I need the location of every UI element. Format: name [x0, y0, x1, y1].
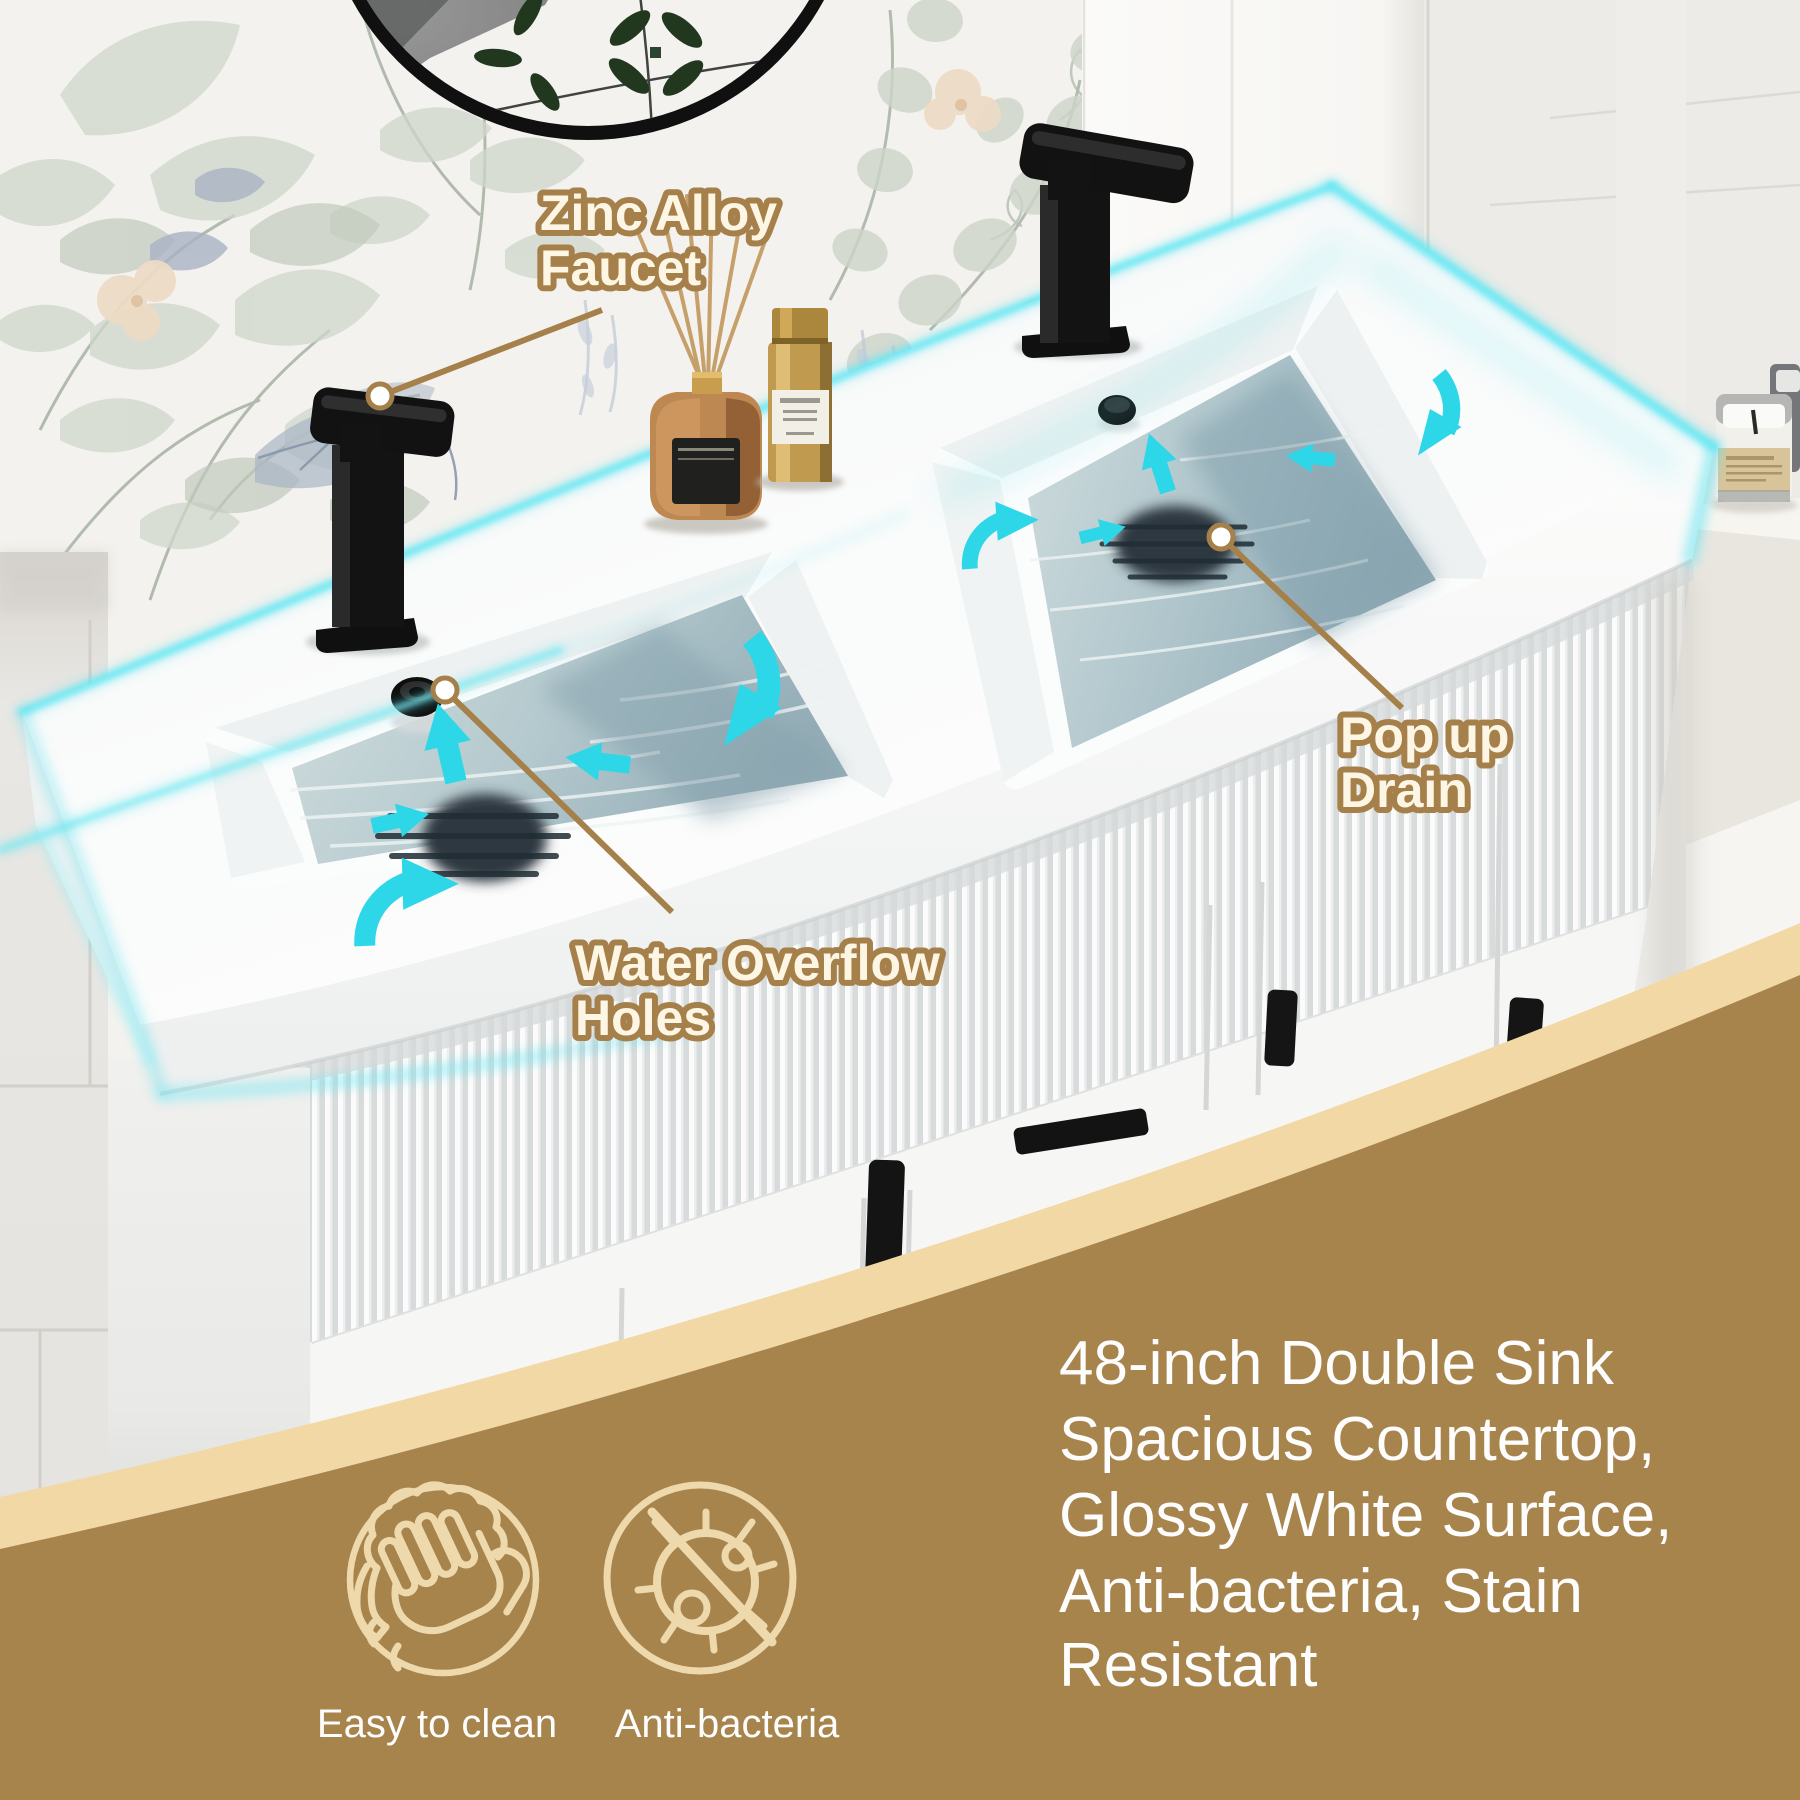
- svg-text:Easy to clean: Easy to clean: [317, 1702, 557, 1746]
- svg-text:Water Overflow: Water Overflow: [575, 935, 940, 991]
- svg-text:Glossy White Surface,: Glossy White Surface,: [1059, 1481, 1672, 1550]
- svg-text:Anti-bacteria: Anti-bacteria: [615, 1702, 840, 1746]
- svg-text:Drain: Drain: [1340, 762, 1468, 818]
- svg-text:Pop up: Pop up: [1340, 707, 1509, 763]
- svg-text:Faucet: Faucet: [540, 240, 702, 296]
- svg-text:Spacious Countertop,: Spacious Countertop,: [1059, 1405, 1655, 1474]
- svg-text:48-inch Double Sink: 48-inch Double Sink: [1059, 1329, 1615, 1398]
- svg-text:Zinc Alloy: Zinc Alloy: [540, 185, 777, 241]
- svg-text:Holes: Holes: [575, 990, 711, 1046]
- svg-text:Anti-bacteria, Stain: Anti-bacteria, Stain: [1059, 1557, 1583, 1626]
- svg-text:Resistant: Resistant: [1059, 1631, 1317, 1700]
